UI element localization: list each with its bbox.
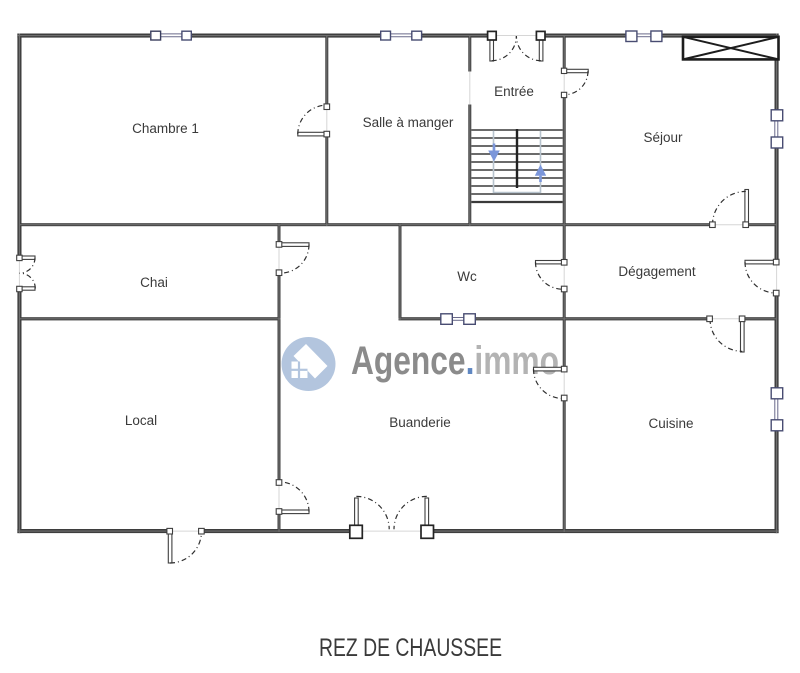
svg-text:Local: Local: [125, 413, 157, 428]
svg-text:Chambre 1: Chambre 1: [132, 121, 199, 136]
svg-text:Wc: Wc: [457, 269, 477, 284]
svg-text:Cuisine: Cuisine: [648, 416, 693, 431]
svg-text:Buanderie: Buanderie: [389, 415, 451, 430]
svg-text:Agence.immo: Agence.immo: [351, 339, 559, 383]
svg-text:Dégagement: Dégagement: [618, 264, 696, 279]
svg-text:Salle à manger: Salle à manger: [363, 115, 454, 130]
svg-text:Chai: Chai: [140, 275, 168, 290]
svg-text:REZ DE CHAUSSEE: REZ DE CHAUSSEE: [319, 635, 502, 662]
svg-text:Entrée: Entrée: [494, 84, 534, 99]
svg-text:Séjour: Séjour: [643, 130, 683, 145]
